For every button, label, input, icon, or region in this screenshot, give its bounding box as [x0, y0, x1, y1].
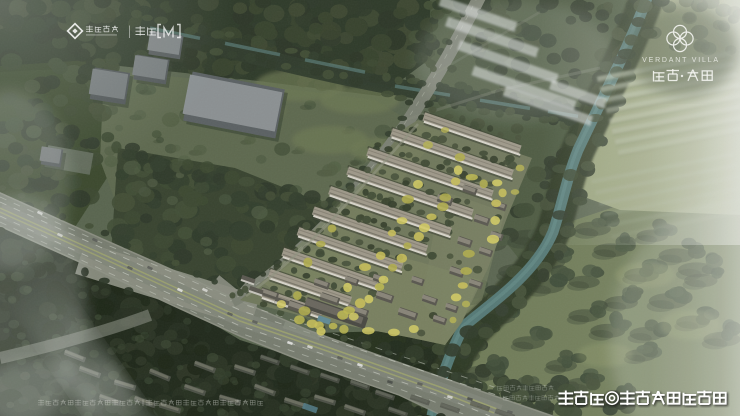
svg-text:VERDANT VILLA: VERDANT VILLA [642, 57, 720, 64]
